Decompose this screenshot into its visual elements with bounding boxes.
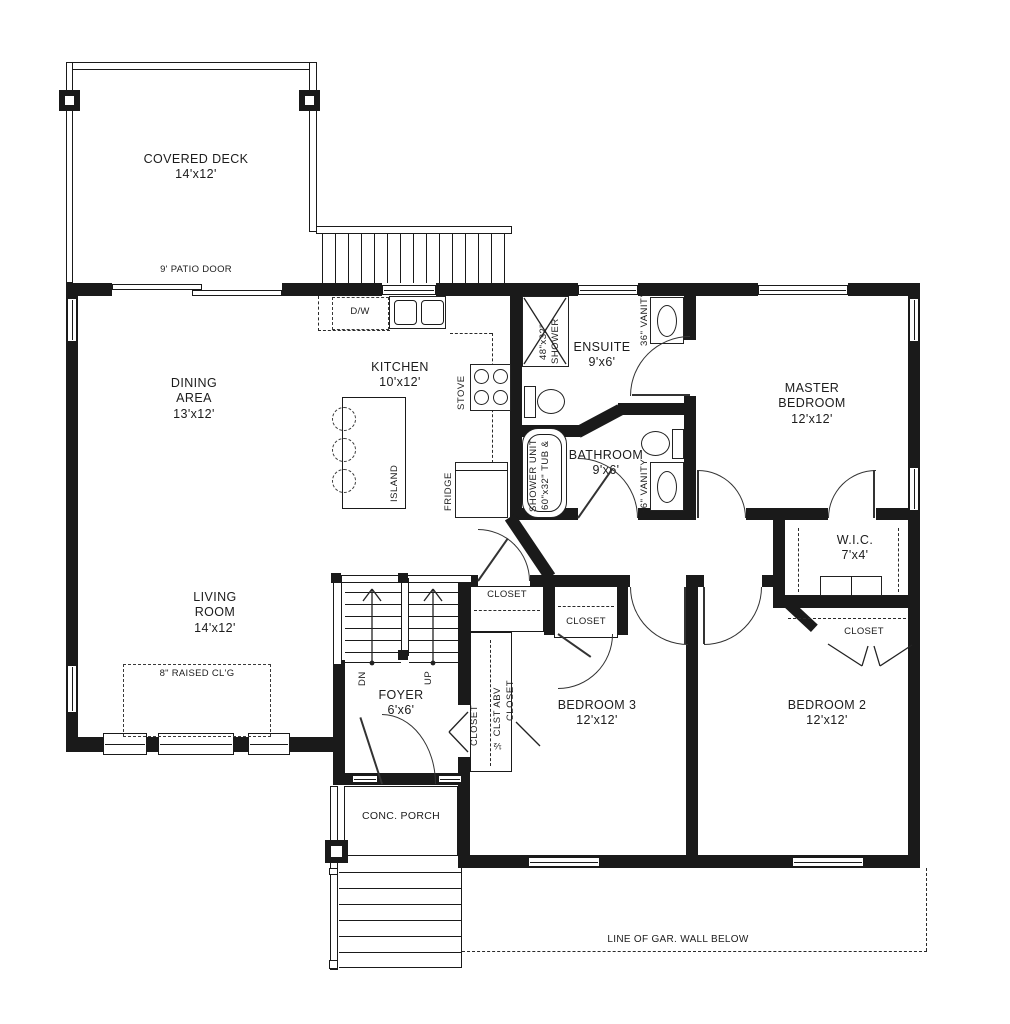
bed3-closet-label: CLOSET [558,616,614,628]
deck-stair-rail [316,226,512,234]
bed3-side-closet-label: CLOSET [505,678,516,722]
patio-door-panel [192,290,282,296]
wall [333,660,345,785]
wall [66,283,112,296]
stair-rail [401,578,409,656]
island-label: ISLAND [389,460,400,506]
deck-rail-right [309,62,317,232]
ensuite-label: ENSUITE9'x6' [558,340,646,371]
garage-wall-line [926,868,927,951]
fridge-label: FRIDGE [443,468,454,516]
vanity-sink [657,305,677,337]
hall-closet-label: CLOSET [475,589,539,601]
wic-label: W.I.C.7'x4' [812,533,898,564]
front-door-arc [382,714,436,784]
bedroom2-door [703,587,705,644]
deck-label: COVERED DECK14'x12' [136,152,256,183]
shower-label: 48"x32" [538,316,549,368]
stool [332,438,356,462]
wic-door [873,470,875,518]
deck-post-inner [65,96,74,105]
wall [458,575,470,705]
window-sidelight [352,775,378,783]
half-closet-label: ½ CLST ABV [492,686,503,752]
patio-door-label: 9' PATIO DOOR [128,264,264,276]
wall-diagonal [575,404,623,437]
toilet-tank [524,386,536,418]
master-bedroom-label: MASTERBEDROOM12'x12' [766,381,858,427]
burner [474,369,489,384]
foyer-closet-label: CLOSET [469,700,480,750]
floor-plan: COVERED DECK14'x12' [0,0,1010,1024]
window [909,298,919,342]
window [758,285,848,295]
window [528,857,600,867]
master-door [697,470,699,518]
vanity-label: 36" VANITY [639,294,650,346]
kitchen-label: KITCHEN10'x12' [352,360,448,391]
wall [436,283,578,296]
wall [638,283,758,296]
deck-post-inner [305,96,314,105]
burner [493,390,508,405]
burner [493,369,508,384]
garage-wall-line [462,951,927,952]
bed3-closet [554,586,618,638]
bedroom2-label: BEDROOM 212'x12' [768,698,886,729]
window [578,285,638,295]
window [909,467,919,511]
window [67,665,77,713]
porch-label: CONC. PORCH [346,810,456,823]
stair-rail [333,575,342,665]
window [67,298,77,342]
wall [908,296,920,868]
vanity-sink [657,471,677,503]
garage-wall-label: LINE OF GAR. WALL BELOW [598,934,758,946]
tub-label: 60"x32" TUB & [540,434,551,516]
bed2-closet-label: CLOSET [834,626,894,638]
bedroom3-door [684,587,686,644]
stool [332,469,356,493]
window-sidelight [438,775,462,783]
toilet-tank [672,429,684,459]
tub-label: SHOWER UNIT [528,436,539,514]
patio-door-panel [112,284,202,290]
burner [474,390,489,405]
raised-ceiling-label: 8" RAISED CL'G [128,668,266,680]
bedroom3-label: BEDROOM 312'x12' [538,698,656,729]
window [382,285,436,295]
toilet-bowl [537,389,565,414]
deck-rail-top [66,62,316,70]
dining-label: DININGAREA13'x12' [148,376,240,422]
ensuite-door [632,394,690,396]
foyer-label: FOYER6'x6' [358,688,444,719]
living-label: LIVINGROOM14'x12' [168,590,262,636]
porch-rail [330,786,338,970]
wall [282,283,382,296]
wall [848,283,920,296]
stove-label: STOVE [456,370,467,416]
dishwasher-label: D/W [340,306,380,318]
stool [332,407,356,431]
window [792,857,864,867]
